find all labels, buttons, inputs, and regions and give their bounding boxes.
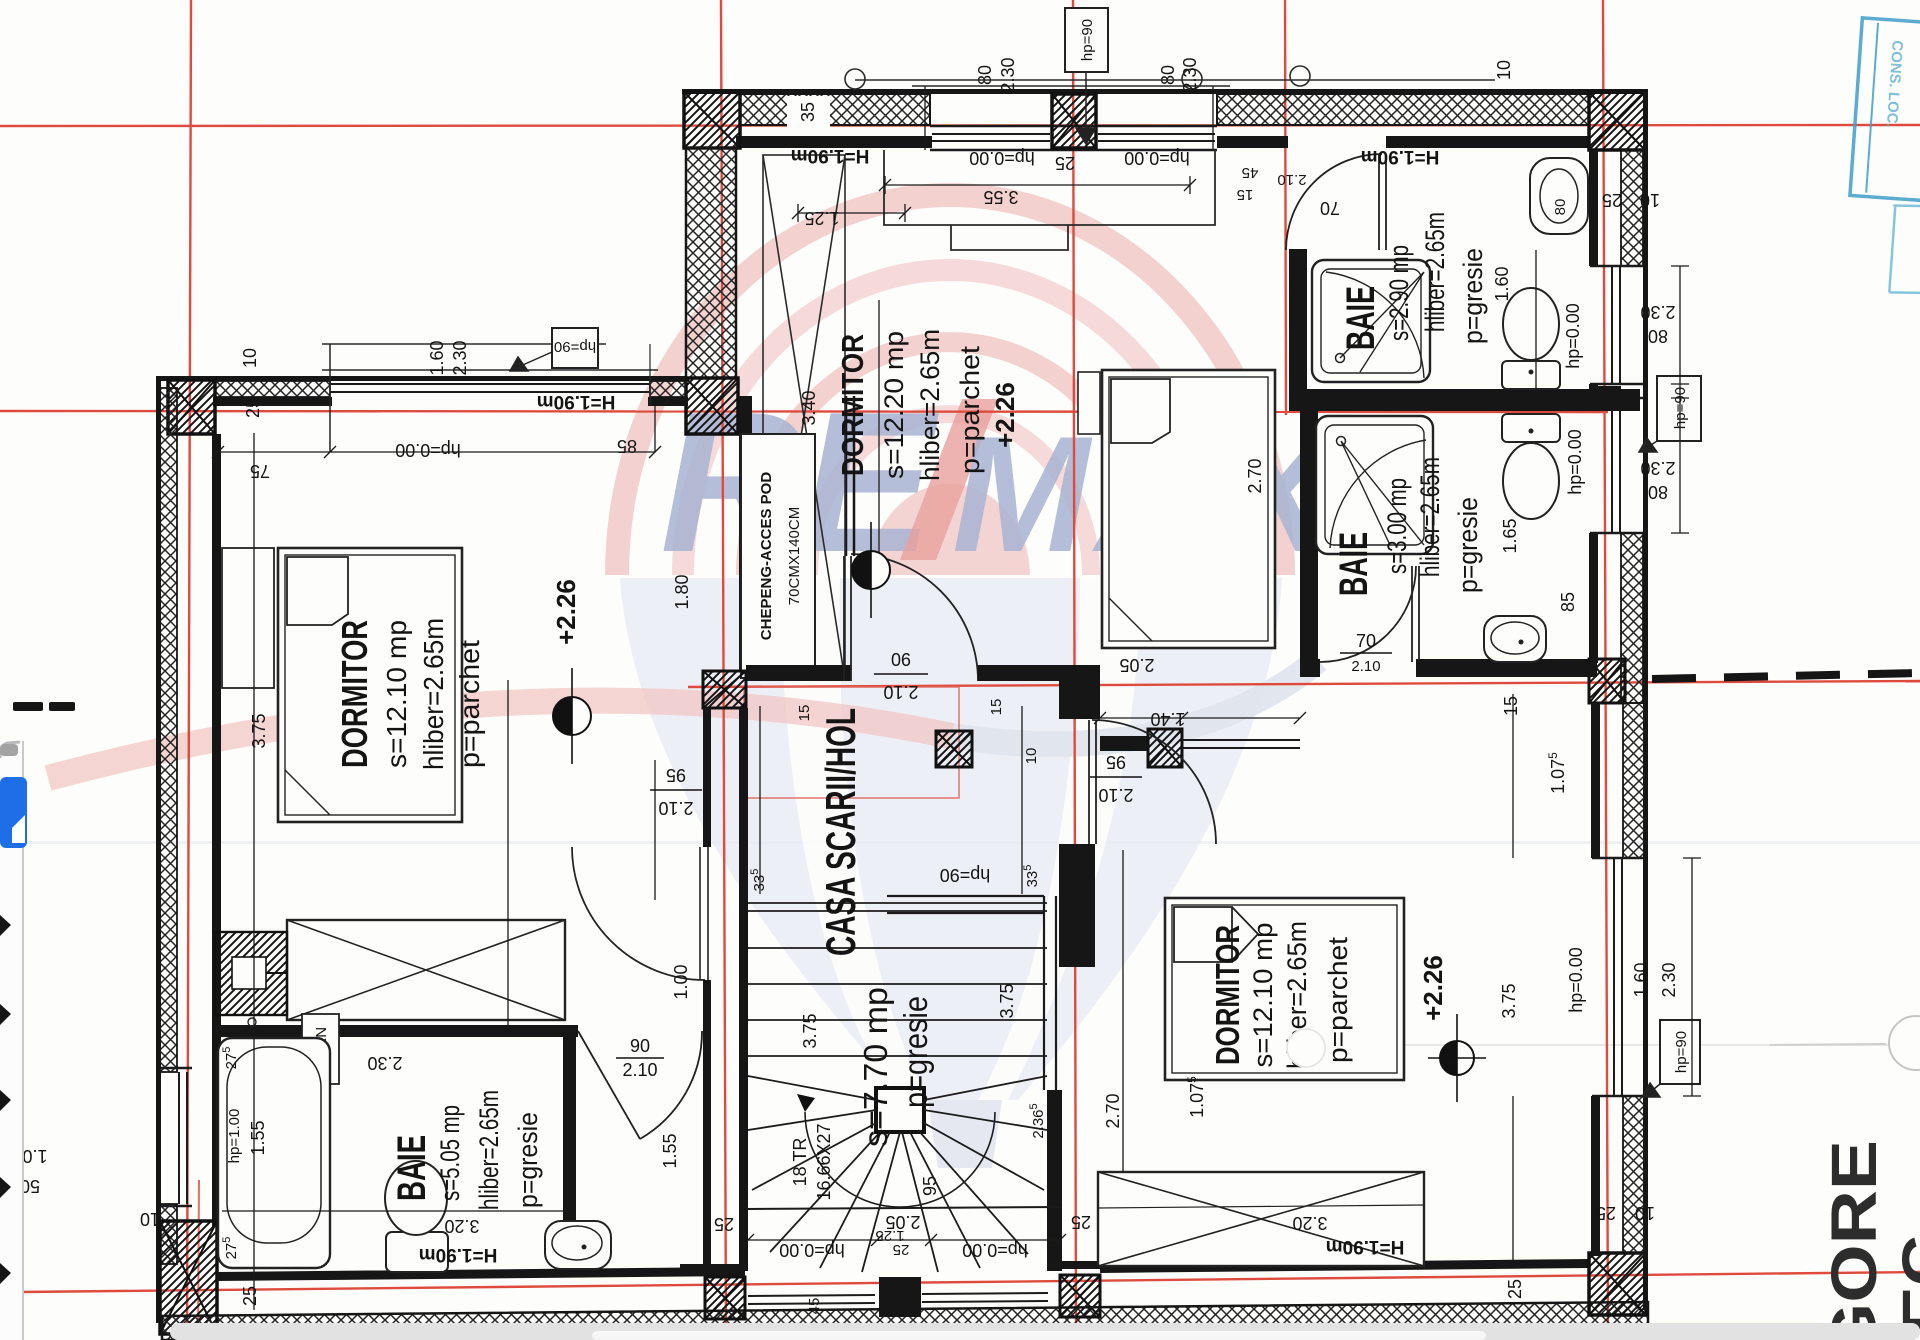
svg-text:95: 95 xyxy=(920,1176,940,1196)
svg-text:15: 15 xyxy=(988,699,1005,716)
svg-text:85: 85 xyxy=(1558,592,1578,612)
svg-text:25: 25 xyxy=(1596,1203,1616,1223)
svg-text:15: 15 xyxy=(796,705,813,722)
svg-text:25: 25 xyxy=(714,1214,734,1234)
svg-text:2.30: 2.30 xyxy=(1180,57,1200,92)
svg-text:3.75: 3.75 xyxy=(249,713,269,748)
svg-text:3.40: 3.40 xyxy=(799,390,819,425)
svg-text:10: 10 xyxy=(1635,1203,1655,1223)
svg-text:1.80: 1.80 xyxy=(672,574,692,609)
svg-text:1.60: 1.60 xyxy=(1492,266,1512,301)
svg-text:p=gresie: p=gresie xyxy=(513,1112,543,1208)
svg-text:3.75: 3.75 xyxy=(997,983,1017,1018)
svg-text:3.20: 3.20 xyxy=(1292,1213,1327,1233)
svg-text:25: 25 xyxy=(243,398,263,418)
svg-text:80: 80 xyxy=(1552,199,1569,216)
svg-text:25: 25 xyxy=(1055,153,1075,173)
svg-text:80: 80 xyxy=(1158,65,1178,85)
svg-text:hp=0.00: hp=0.00 xyxy=(1566,947,1586,1013)
svg-text:80: 80 xyxy=(1648,326,1668,346)
svg-text:10: 10 xyxy=(140,1209,160,1229)
svg-text:2.30: 2.30 xyxy=(367,1053,402,1073)
svg-text:70: 70 xyxy=(1356,631,1376,651)
svg-text:35: 35 xyxy=(798,102,818,122)
svg-text:hp=90: hp=90 xyxy=(940,865,991,885)
svg-text:hp=0.00: hp=0.00 xyxy=(395,440,461,460)
svg-text:s=5.05 mp: s=5.05 mp xyxy=(435,1105,465,1201)
svg-text:95: 95 xyxy=(666,765,686,785)
svg-text:p=gresie: p=gresie xyxy=(1458,248,1488,344)
svg-text:H=1.90m: H=1.90m xyxy=(1361,146,1440,167)
svg-text:CASA SCARII/HOL: CASA SCARII/HOL xyxy=(817,708,864,956)
svg-text:1.25: 1.25 xyxy=(875,1227,904,1244)
svg-text:1.55: 1.55 xyxy=(660,1133,680,1168)
svg-text:25: 25 xyxy=(1505,1279,1525,1299)
svg-text:DORMITOR: DORMITOR xyxy=(1209,925,1246,1065)
svg-text:hp=0.00: hp=0.00 xyxy=(1124,148,1190,168)
svg-text:hp=0.00: hp=0.00 xyxy=(1565,429,1585,495)
svg-text:p=gresie: p=gresie xyxy=(1453,497,1483,593)
svg-text:45: 45 xyxy=(1242,164,1259,181)
svg-text:1.60: 1.60 xyxy=(427,340,447,375)
svg-text:10: 10 xyxy=(1023,748,1040,765)
svg-text:s=12.10 mp: s=12.10 mp xyxy=(381,620,412,768)
svg-text:hp=0.00: hp=0.00 xyxy=(969,148,1035,168)
svg-text:10: 10 xyxy=(240,348,260,368)
svg-text:CHEPENG-ACCES POD: CHEPENG-ACCES POD xyxy=(758,472,775,641)
svg-text:95: 95 xyxy=(1106,752,1126,772)
svg-text:2.30: 2.30 xyxy=(1640,302,1675,322)
svg-text:25: 25 xyxy=(240,1286,260,1306)
svg-text:hp=90: hp=90 xyxy=(554,338,596,355)
svg-text:hp=90: hp=90 xyxy=(1673,1031,1690,1073)
svg-text:16.66X27: 16.66X27 xyxy=(814,1123,834,1200)
svg-text:2.10: 2.10 xyxy=(1098,785,1133,805)
svg-text:3.20: 3.20 xyxy=(444,1216,479,1236)
svg-text:1.25: 1.25 xyxy=(804,208,839,228)
svg-text:2.10: 2.10 xyxy=(658,798,693,818)
svg-text:25: 25 xyxy=(1602,190,1622,210)
svg-text:15: 15 xyxy=(1237,186,1254,203)
svg-text:3.55: 3.55 xyxy=(983,187,1018,207)
svg-text:2.30: 2.30 xyxy=(998,57,1018,92)
svg-text:75: 75 xyxy=(250,461,270,481)
svg-text:45: 45 xyxy=(806,1298,823,1315)
svg-text:H=1.90m: H=1.90m xyxy=(419,1244,498,1265)
svg-text:DORMITOR: DORMITOR xyxy=(835,334,870,476)
svg-text:+2.26: +2.26 xyxy=(1418,955,1448,1021)
svg-text:hliber=2.65m: hliber=2.65m xyxy=(418,618,449,770)
svg-text:70: 70 xyxy=(1320,198,1340,218)
svg-text:70CMX140CM: 70CMX140CM xyxy=(786,507,803,605)
svg-text:hp=1.00: hp=1.00 xyxy=(226,1109,243,1164)
svg-text:p=gresie: p=gresie xyxy=(897,996,934,1108)
svg-text:80: 80 xyxy=(1648,482,1668,502)
svg-text:hp=0.00: hp=0.00 xyxy=(962,1240,1028,1260)
svg-text:H=1.90m: H=1.90m xyxy=(791,145,870,166)
svg-text:s=7.70 mp: s=7.70 mp xyxy=(857,987,894,1147)
svg-text:BAIE: BAIE xyxy=(1332,532,1376,596)
svg-text:1.60: 1.60 xyxy=(1631,962,1651,997)
svg-text:H=1.90m: H=1.90m xyxy=(537,391,616,412)
svg-text:3.75: 3.75 xyxy=(1499,983,1519,1018)
svg-text:p=parchet: p=parchet xyxy=(955,345,985,474)
svg-text:s=2.90 mp: s=2.90 mp xyxy=(1384,245,1414,341)
svg-text:s=12.10 mp: s=12.10 mp xyxy=(1248,923,1278,1068)
svg-text:2.10: 2.10 xyxy=(883,682,918,702)
svg-text:hp=90: hp=90 xyxy=(1079,19,1096,61)
svg-text:85: 85 xyxy=(617,436,637,456)
svg-text:+2.26: +2.26 xyxy=(551,579,581,645)
svg-text:3.75: 3.75 xyxy=(800,1013,820,1048)
svg-text:2.05: 2.05 xyxy=(1119,655,1154,675)
svg-text:s=3.00 mp: s=3.00 mp xyxy=(1382,478,1412,574)
svg-text:+2.26: +2.26 xyxy=(990,382,1020,448)
svg-text:IGORE: IGORE xyxy=(1818,1140,1890,1340)
svg-text:hliber=2.65m: hliber=2.65m xyxy=(474,1090,504,1210)
svg-text:90: 90 xyxy=(891,649,911,669)
svg-text:H=1.90m: H=1.90m xyxy=(1326,1236,1405,1257)
svg-text:2.70: 2.70 xyxy=(1103,1093,1123,1128)
svg-text:1.65: 1.65 xyxy=(1500,518,1520,553)
svg-text:2.10: 2.10 xyxy=(1277,171,1306,188)
svg-text:BAIE: BAIE xyxy=(390,1135,434,1201)
svg-text:2.30: 2.30 xyxy=(450,340,470,375)
svg-text:25: 25 xyxy=(1071,1212,1091,1232)
svg-text:18 TR: 18 TR xyxy=(790,1138,810,1187)
svg-text:1.00: 1.00 xyxy=(671,964,691,999)
svg-text:10: 10 xyxy=(1494,60,1514,80)
svg-text:p=parchet: p=parchet xyxy=(1323,936,1353,1063)
svg-text:1.55: 1.55 xyxy=(248,1120,268,1155)
svg-text:p=parchet: p=parchet xyxy=(454,640,485,768)
svg-text:2.30: 2.30 xyxy=(1640,458,1675,478)
svg-text:BAIE: BAIE xyxy=(1339,286,1383,350)
svg-text:80: 80 xyxy=(975,65,995,85)
svg-text:2.70: 2.70 xyxy=(1245,458,1265,493)
svg-text:2.10: 2.10 xyxy=(622,1060,657,1080)
svg-text:10: 10 xyxy=(1640,190,1660,210)
svg-text:DORMITOR: DORMITOR xyxy=(334,620,375,768)
svg-text:hliber=2.65m: hliber=2.65m xyxy=(1415,457,1445,577)
svg-text:hp=0.00: hp=0.00 xyxy=(1563,303,1583,369)
svg-text:s=12.20 mp: s=12.20 mp xyxy=(879,331,909,479)
svg-text:15: 15 xyxy=(1501,696,1521,716)
svg-text:hp=0.00: hp=0.00 xyxy=(779,1240,845,1260)
svg-text:90: 90 xyxy=(630,1036,650,1056)
svg-text:2.30: 2.30 xyxy=(1659,962,1679,997)
svg-text:hliber=2.65m: hliber=2.65m xyxy=(915,329,945,481)
svg-text:2.10: 2.10 xyxy=(1351,658,1380,675)
svg-text:hliber=2.65m: hliber=2.65m xyxy=(1420,212,1450,332)
